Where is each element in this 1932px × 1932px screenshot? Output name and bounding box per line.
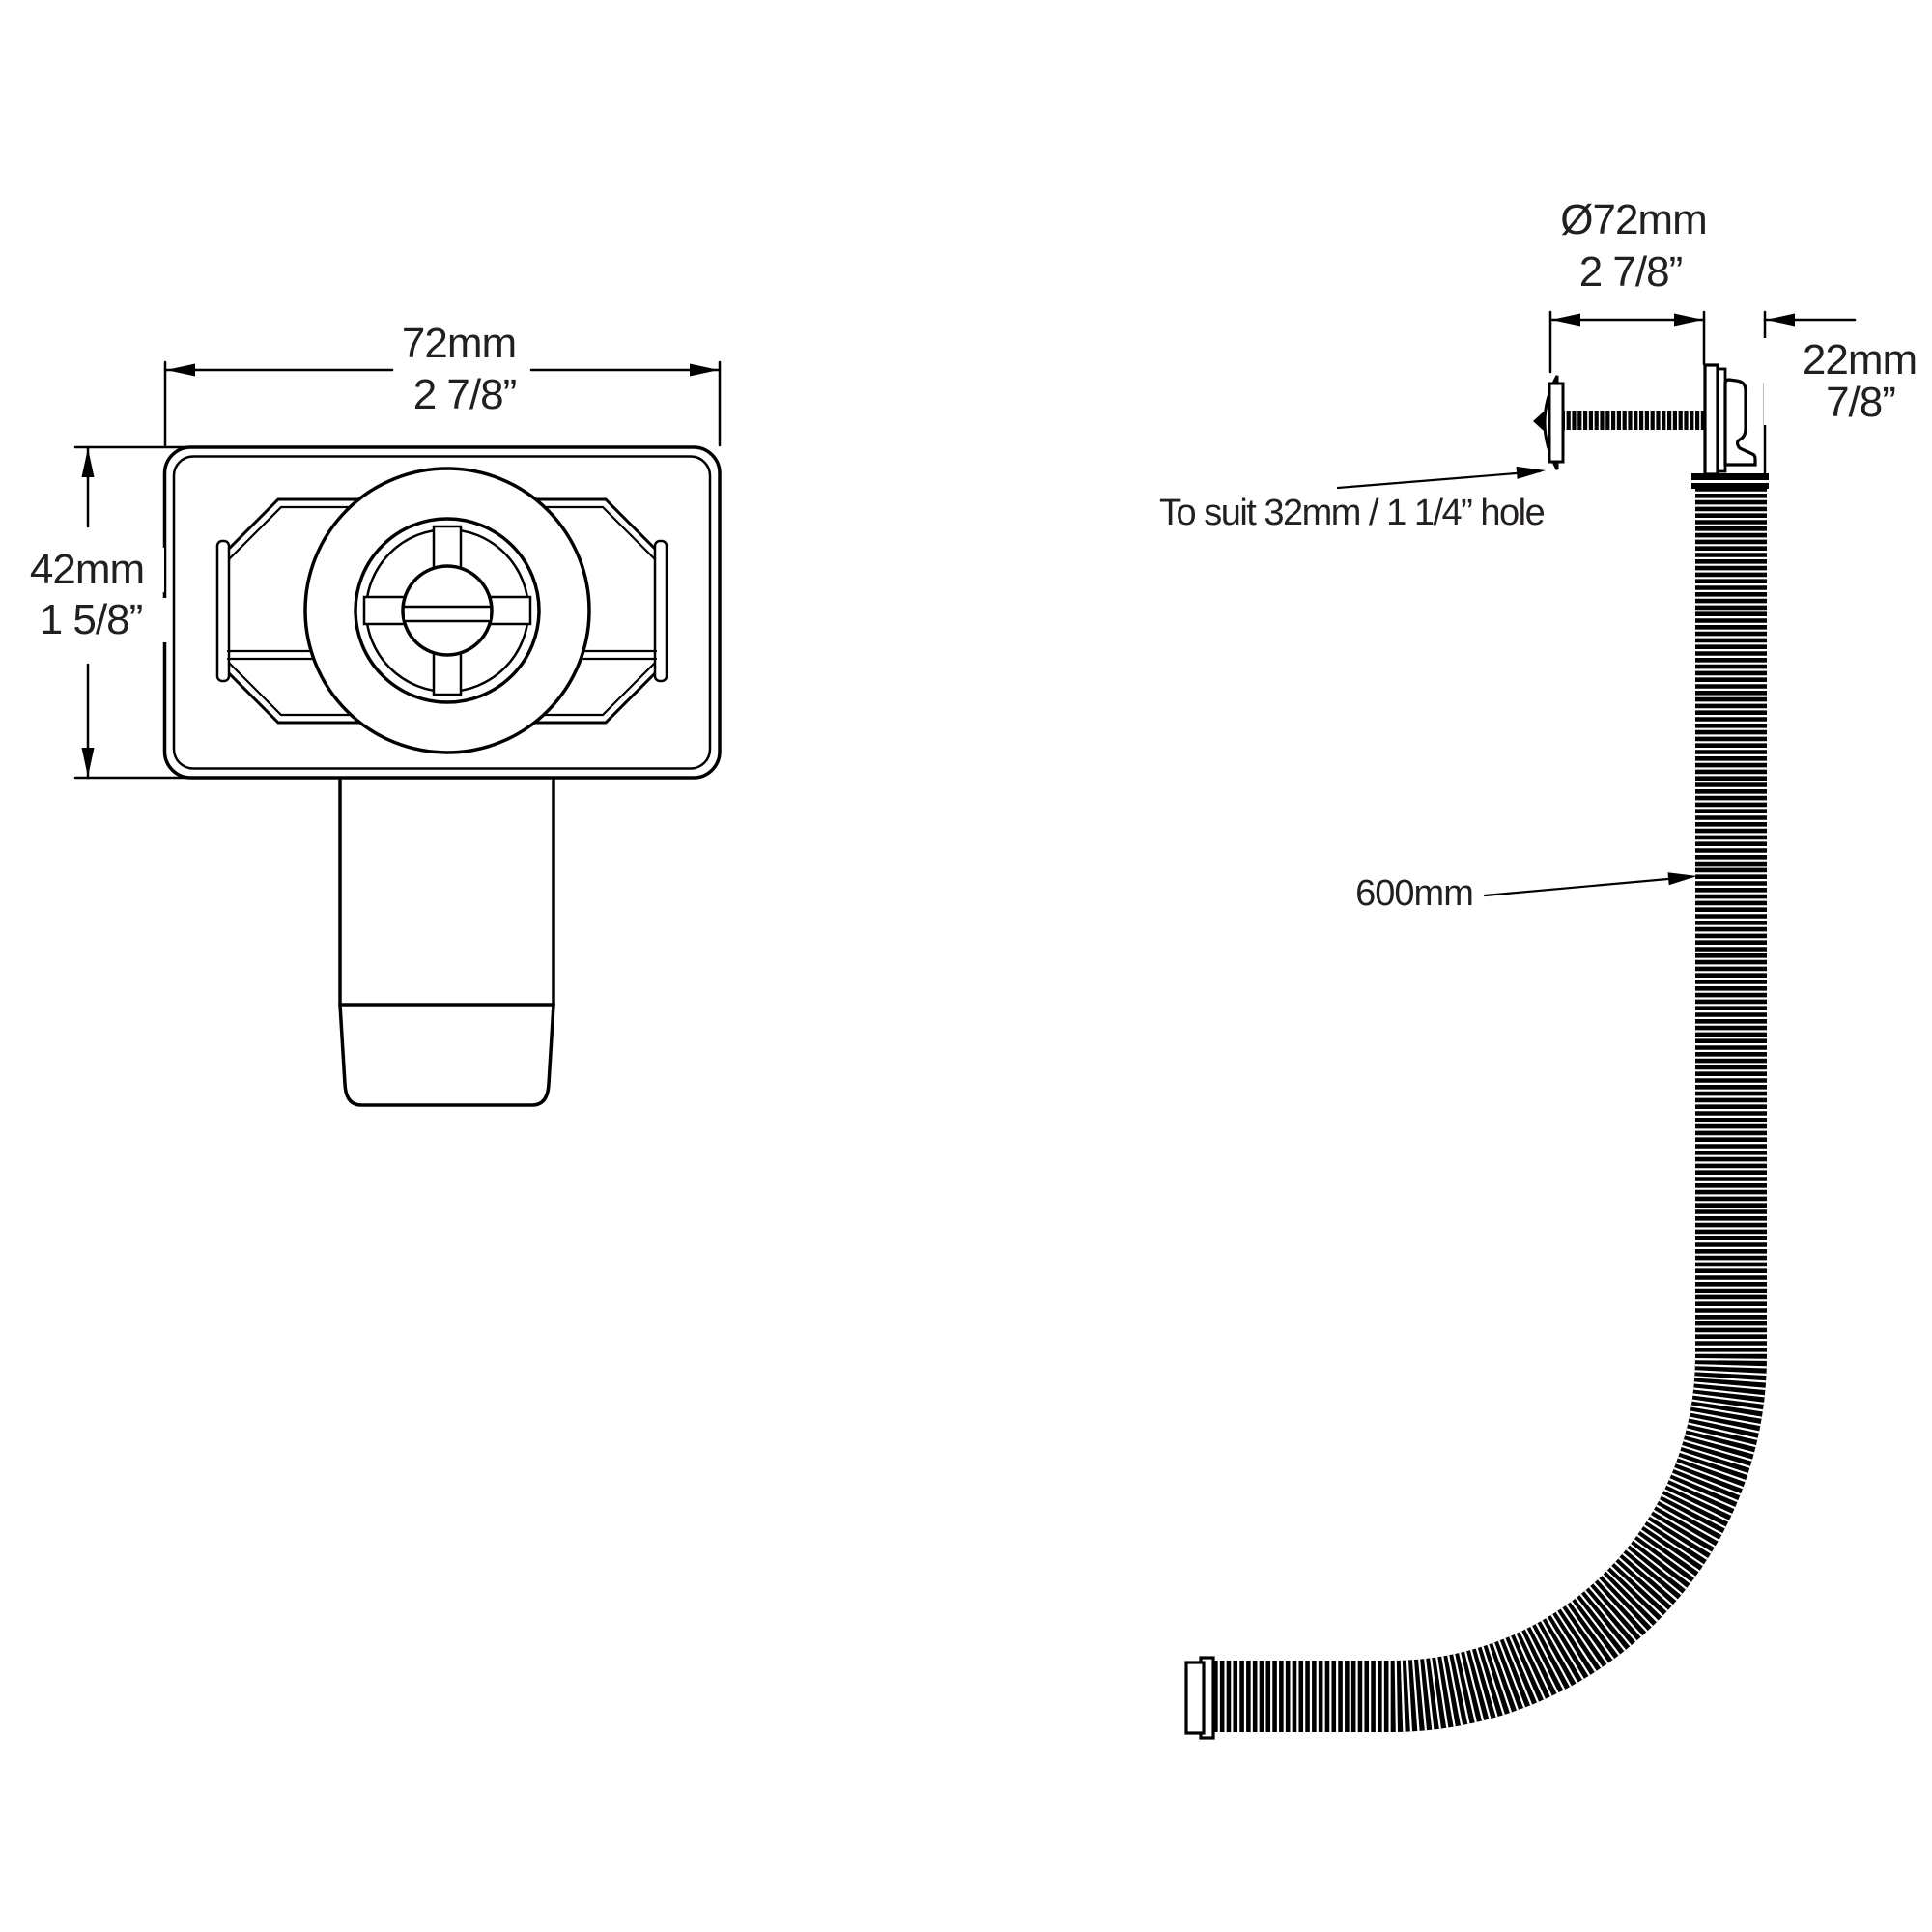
hose-end-fitting: [1186, 1658, 1213, 1738]
side-depth-mm-label: 22mm: [1763, 338, 1932, 383]
flexible-hose: [1207, 473, 1769, 1696]
front-width-mm-label: 72mm: [362, 322, 555, 366]
left-clip: [217, 541, 229, 681]
hose-top-ring: [1691, 473, 1769, 480]
outlet-tube: [340, 780, 554, 1105]
hose-length-label: 600mm: [1350, 875, 1478, 914]
front-height-mm-label: 42mm: [10, 548, 164, 592]
front-width-in-label: 2 7/8”: [368, 373, 561, 417]
dial-slot: [404, 607, 491, 621]
side-diameter-in-label: 2 7/8”: [1534, 250, 1727, 295]
technical-drawing-page: 72mm 2 7/8” 42mm 1 5/8” Ø72mm 2 7/8” 22m…: [0, 0, 1932, 1932]
front-height-in-label: 1 5/8”: [14, 598, 168, 642]
body-profile: [1725, 380, 1755, 465]
face-plate: [1533, 376, 1563, 469]
side-diameter-mm-label: Ø72mm: [1537, 198, 1730, 242]
right-clip: [655, 541, 667, 681]
hole-note-leader: [1338, 467, 1546, 488]
side-depth-in-label: 7/8”: [1764, 381, 1932, 425]
front-view-drawing: [75, 362, 720, 1105]
hole-note-label: To suit 32mm / 1 1/4” hole: [1159, 495, 1544, 533]
screw-tip: [1533, 412, 1544, 431]
overflow-body: [1705, 365, 1755, 474]
overflow-dial: [305, 469, 589, 753]
hose-top-ring: [1691, 483, 1769, 489]
body-flange: [1705, 365, 1718, 474]
hose-length-leader: [1485, 872, 1697, 895]
